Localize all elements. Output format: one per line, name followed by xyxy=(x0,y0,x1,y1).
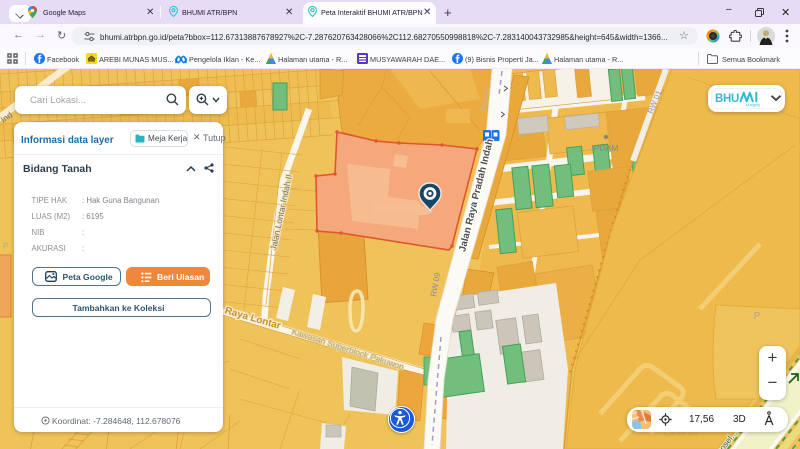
svg-text:ATR/BPN: ATR/BPN xyxy=(746,104,761,108)
svg-text:P: P xyxy=(3,242,8,251)
svg-text:BHU: BHU xyxy=(715,93,739,105)
svg-text:PDAM: PDAM xyxy=(594,143,619,153)
svg-text:P: P xyxy=(754,311,761,322)
